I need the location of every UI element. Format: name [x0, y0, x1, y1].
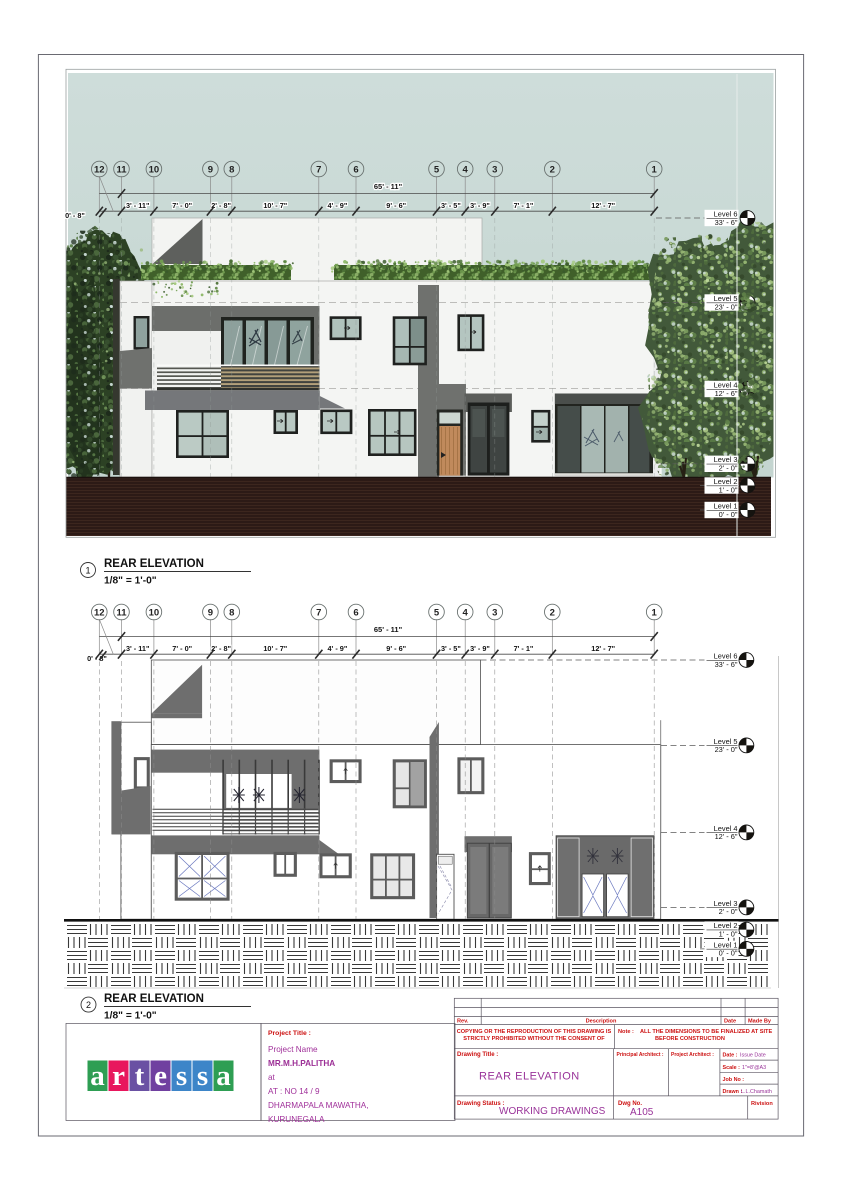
svg-text:23' - 0": 23' - 0": [715, 302, 738, 311]
svg-text:4' - 9": 4' - 9": [328, 644, 348, 653]
svg-text:7' - 1": 7' - 1": [514, 644, 534, 653]
svg-text:2' - 0": 2' - 0": [719, 464, 738, 473]
svg-text:33' - 6": 33' - 6": [715, 660, 738, 669]
svg-text:2: 2: [550, 607, 555, 618]
svg-text:7' - 1": 7' - 1": [514, 201, 534, 210]
svg-text:Drawn :: Drawn :: [723, 1089, 743, 1095]
svg-text:1' - 0": 1' - 0": [719, 929, 738, 938]
svg-text:3' - 9": 3' - 9": [470, 201, 490, 210]
svg-text:5: 5: [434, 164, 440, 175]
svg-text:10' - 7": 10' - 7": [263, 644, 287, 653]
svg-text:0' - 0": 0' - 0": [719, 510, 738, 519]
svg-text:65' - 11": 65' - 11": [374, 182, 403, 191]
svg-text:Description: Description: [586, 1019, 617, 1025]
svg-text:1/8" = 1'-0": 1/8" = 1'-0": [104, 1011, 157, 1022]
svg-text:8: 8: [229, 164, 234, 175]
svg-text:12' - 6": 12' - 6": [715, 389, 738, 398]
svg-text:Date :: Date :: [723, 1053, 738, 1059]
svg-text:REAR ELEVATION: REAR ELEVATION: [479, 1071, 580, 1083]
svg-text:65' - 11": 65' - 11": [374, 625, 403, 634]
svg-text:6: 6: [353, 164, 358, 175]
svg-text:9: 9: [208, 164, 213, 175]
svg-text:9' - 6": 9' - 6": [386, 644, 406, 653]
svg-text:23' - 0": 23' - 0": [715, 745, 738, 754]
svg-text:3: 3: [492, 607, 497, 618]
svg-text:6: 6: [353, 607, 358, 618]
svg-text:Drawing Title :: Drawing Title :: [457, 1052, 498, 1058]
svg-text:COPYING OR THE REPRODUCTION OF: COPYING OR THE REPRODUCTION OF THIS DRAW…: [457, 1029, 612, 1035]
svg-text:12' - 7": 12' - 7": [591, 644, 615, 653]
svg-text:2' - 8": 2' - 8": [211, 644, 231, 653]
svg-text:Made By: Made By: [748, 1019, 772, 1025]
svg-text:STRICTLY PROHIBITED WITHOUT TH: STRICTLY PROHIBITED WITHOUT THE CONSENT …: [463, 1036, 605, 1042]
svg-text:33' - 6": 33' - 6": [715, 218, 738, 227]
svg-text:Rivision: Rivision: [751, 1101, 773, 1107]
svg-text:7: 7: [316, 164, 321, 175]
svg-text:Issue Date: Issue Date: [740, 1053, 766, 1059]
svg-text:5: 5: [434, 607, 440, 618]
svg-text:Project Architect :: Project Architect :: [671, 1052, 714, 1058]
svg-text:0' - 8": 0' - 8": [65, 211, 85, 220]
svg-text:BEFORE CONSTRUCTION: BEFORE CONSTRUCTION: [655, 1036, 725, 1042]
svg-text:4: 4: [463, 607, 469, 618]
svg-text:Scale :: Scale :: [723, 1065, 741, 1071]
svg-text:Drawing Status :: Drawing Status :: [457, 1101, 504, 1107]
svg-text:3' - 5": 3' - 5": [441, 644, 461, 653]
svg-text:2' - 8": 2' - 8": [211, 201, 231, 210]
svg-text:L.L.Chamath: L.L.Chamath: [741, 1089, 772, 1095]
svg-text:10: 10: [149, 607, 160, 618]
svg-text:9' - 6": 9' - 6": [386, 201, 406, 210]
svg-text:at: at: [268, 1073, 276, 1082]
svg-text:t: t: [135, 1060, 145, 1092]
svg-text:ALL THE DIMENSIONS TO BE FINAL: ALL THE DIMENSIONS TO BE FINALIZED AT SI…: [640, 1029, 772, 1035]
svg-text:r: r: [112, 1060, 125, 1092]
svg-text:3' - 11": 3' - 11": [126, 201, 149, 210]
svg-text:Rev.: Rev.: [457, 1019, 469, 1025]
svg-text:Project Title :: Project Title :: [268, 1030, 311, 1037]
svg-text:7' - 0": 7' - 0": [172, 201, 192, 210]
svg-text:a: a: [90, 1060, 105, 1092]
svg-text:Note :: Note :: [618, 1029, 634, 1035]
svg-text:12: 12: [94, 164, 105, 175]
svg-text:REAR ELEVATION: REAR ELEVATION: [104, 993, 204, 1005]
svg-text:1"=8'@A3: 1"=8'@A3: [742, 1065, 766, 1071]
svg-text:a: a: [216, 1060, 231, 1092]
svg-text:s: s: [197, 1060, 208, 1092]
svg-text:2' - 0": 2' - 0": [719, 907, 738, 916]
svg-text:KURUNEGALA: KURUNEGALA: [268, 1115, 325, 1124]
svg-text:A105: A105: [630, 1107, 654, 1118]
svg-text:12: 12: [94, 607, 105, 618]
svg-text:12' - 7": 12' - 7": [591, 201, 615, 210]
svg-text:4: 4: [463, 164, 469, 175]
svg-text:Job No :: Job No :: [723, 1077, 745, 1083]
svg-text:0' - 0": 0' - 0": [719, 949, 738, 958]
svg-text:WORKING DRAWINGS: WORKING DRAWINGS: [499, 1106, 606, 1117]
svg-text:2: 2: [86, 1000, 91, 1010]
svg-text:e: e: [154, 1060, 167, 1092]
svg-text:4' - 9": 4' - 9": [328, 201, 348, 210]
svg-text:10' - 7": 10' - 7": [263, 201, 287, 210]
svg-text:2: 2: [550, 164, 555, 175]
svg-text:REAR ELEVATION: REAR ELEVATION: [104, 558, 204, 570]
svg-text:1/8" = 1'-0": 1/8" = 1'-0": [104, 576, 157, 587]
svg-text:1: 1: [652, 607, 658, 618]
svg-text:Project Name: Project Name: [268, 1045, 318, 1054]
svg-text:DHARMAPALA MAWATHA,: DHARMAPALA MAWATHA,: [268, 1101, 369, 1110]
svg-text:11: 11: [116, 164, 127, 175]
svg-text:3' - 9": 3' - 9": [470, 644, 490, 653]
svg-text:3: 3: [492, 164, 497, 175]
svg-text:Date: Date: [724, 1019, 736, 1025]
svg-text:8: 8: [229, 607, 234, 618]
svg-text:7: 7: [316, 607, 321, 618]
svg-text:1: 1: [652, 164, 658, 175]
svg-text:1' - 0": 1' - 0": [719, 485, 738, 494]
svg-text:AT : NO 14 / 9: AT : NO 14 / 9: [268, 1087, 320, 1096]
svg-text:3' - 5": 3' - 5": [441, 201, 461, 210]
svg-text:12' - 6": 12' - 6": [715, 832, 738, 841]
svg-text:1: 1: [85, 565, 90, 575]
svg-text:MR.M.H.PALITHA: MR.M.H.PALITHA: [268, 1059, 335, 1068]
svg-text:9: 9: [208, 607, 213, 618]
svg-text:Principal Architect :: Principal Architect :: [617, 1052, 664, 1058]
svg-text:3' - 11": 3' - 11": [126, 644, 149, 653]
svg-text:7' - 0": 7' - 0": [172, 644, 192, 653]
svg-text:s: s: [176, 1060, 187, 1092]
svg-text:10: 10: [149, 164, 160, 175]
svg-text:11: 11: [116, 607, 127, 618]
